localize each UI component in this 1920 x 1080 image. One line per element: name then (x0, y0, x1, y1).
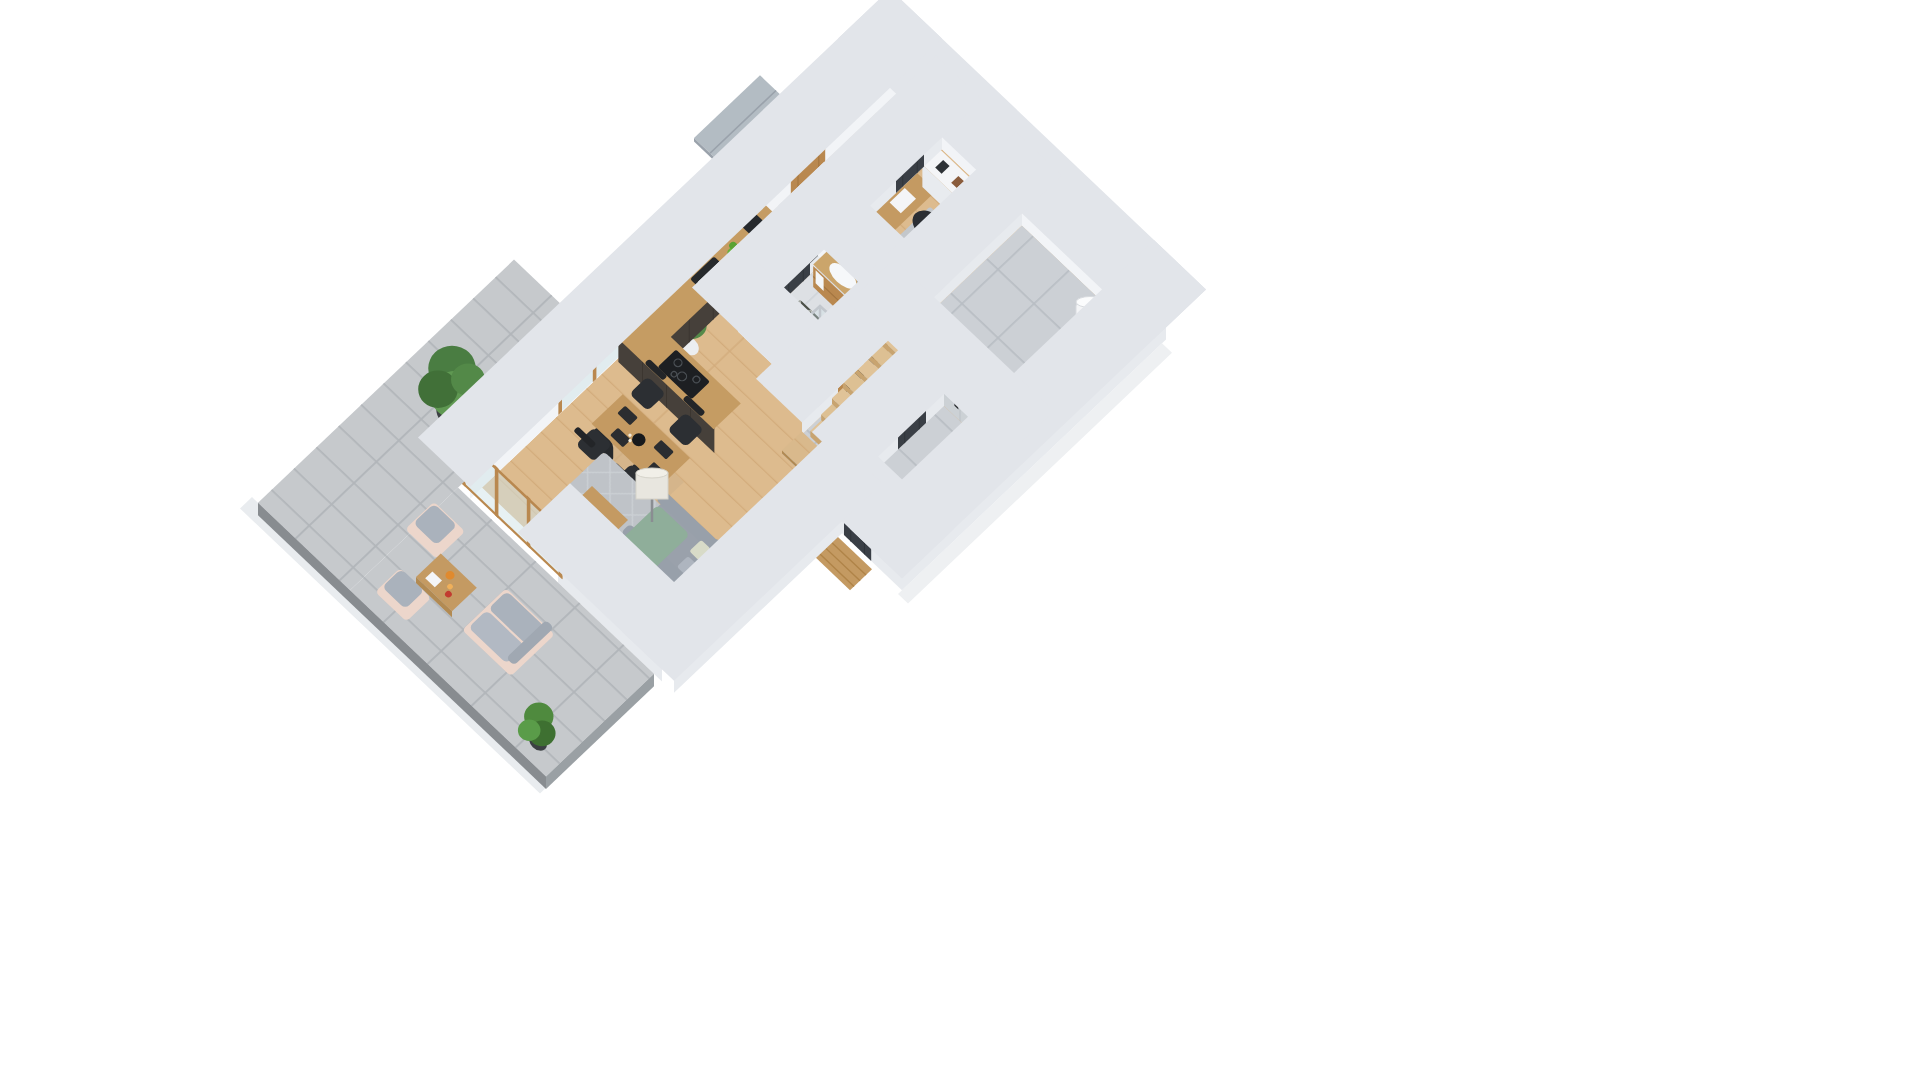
lamp-shade-top (636, 468, 668, 478)
isometric-floorplan-canvas (0, 0, 1920, 1080)
floorplan-render-page (0, 0, 1920, 1080)
glass-mullion (495, 465, 499, 518)
